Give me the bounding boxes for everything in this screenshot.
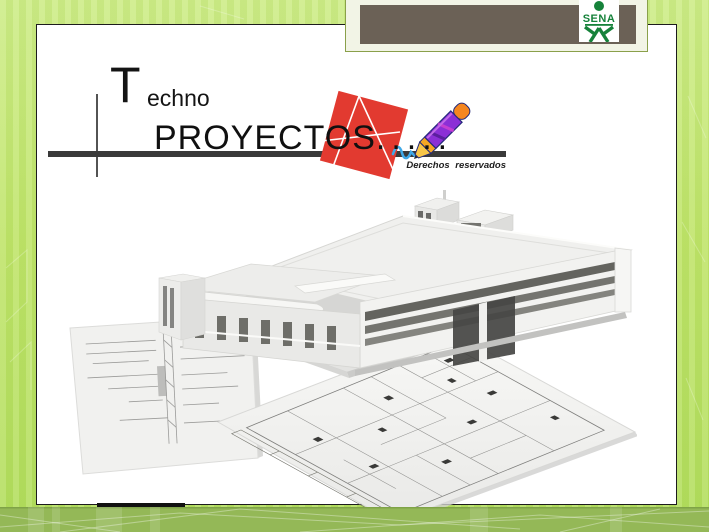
page-title: PROYECTOS..... bbox=[154, 121, 453, 155]
footer-band bbox=[0, 507, 709, 532]
sena-logo-text: SENA bbox=[583, 13, 616, 25]
crosshair-vertical-rule bbox=[96, 94, 98, 177]
rights-note: Derechos reservados bbox=[382, 160, 506, 171]
title-initial: T bbox=[110, 60, 141, 110]
header-banner: SENA bbox=[345, 0, 648, 52]
sena-logo: SENA bbox=[579, 0, 619, 42]
building-render-image bbox=[55, 190, 637, 507]
sena-person-icon: SENA bbox=[579, 0, 619, 42]
title-initial-rest: echno bbox=[147, 87, 210, 110]
slide-canvas: T echno PROYECTOS..... Derechos reservad… bbox=[0, 0, 709, 532]
title-word: PROYECTOS bbox=[154, 119, 376, 157]
title-dots: ..... bbox=[376, 119, 453, 157]
